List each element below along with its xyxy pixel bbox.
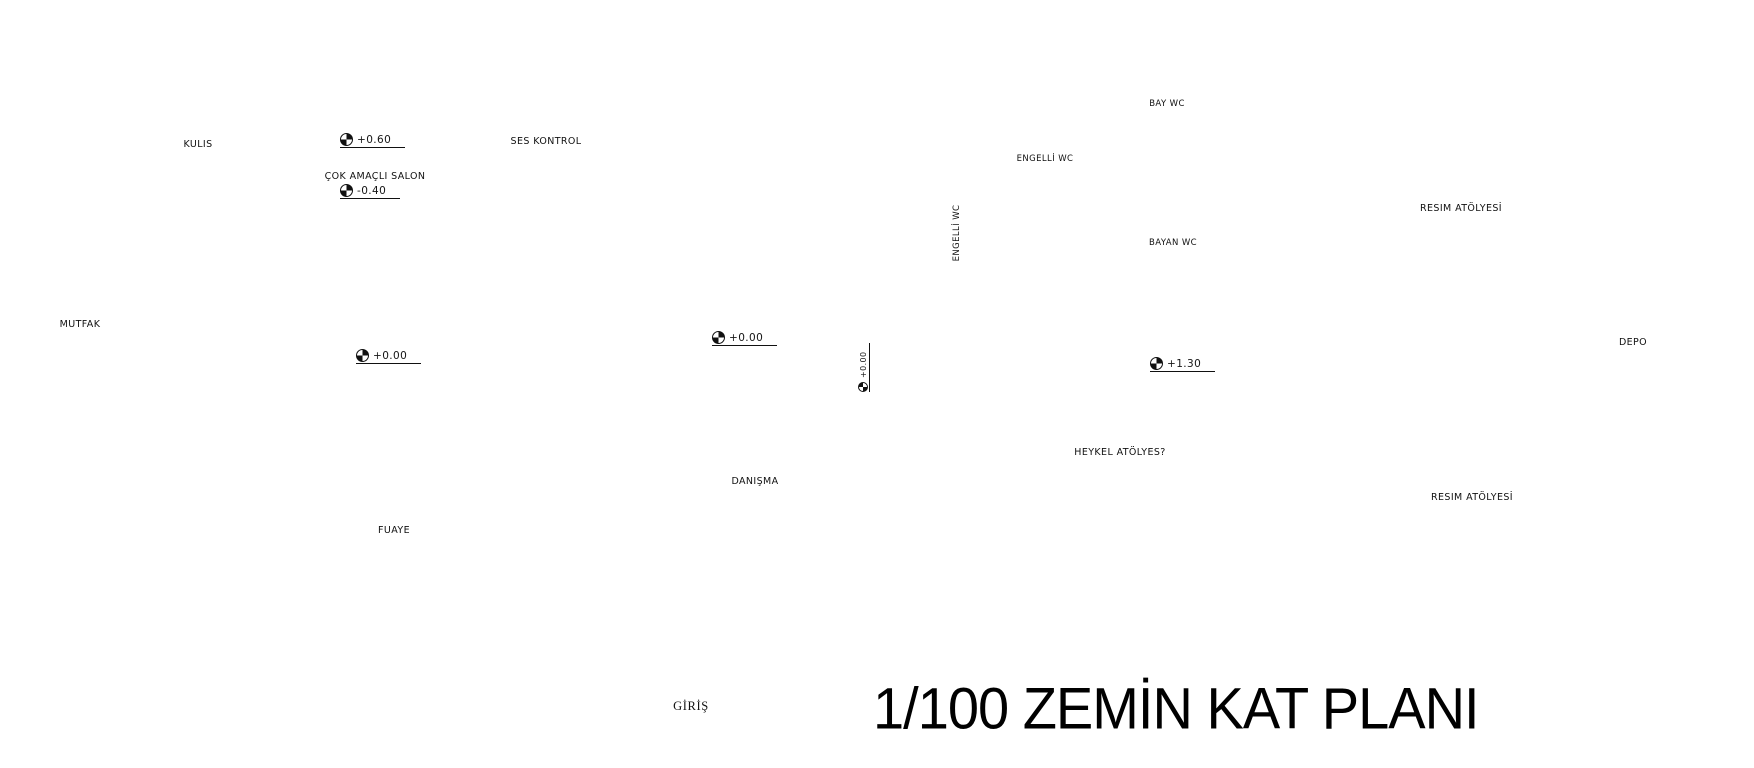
elevation-marker-ramp: +0.00 — [858, 343, 870, 392]
room-label-heykel-atolyesi: HEYKEL ATÖLYES? — [1074, 447, 1165, 458]
level-symbol-icon — [712, 331, 725, 344]
level-symbol-icon — [1150, 357, 1163, 370]
room-label-mutfak: MUTFAK — [60, 319, 101, 330]
elevation-marker-atolye: +1.30 — [1150, 357, 1215, 372]
room-label-engelli-wc-lower: ENGELLİ WC — [952, 205, 962, 262]
floor-plan-canvas — [0, 0, 1754, 768]
room-label-fuaye: FUAYE — [378, 525, 410, 536]
sheet-title: 1/100 ZEMİN KAT PLANI — [873, 674, 1479, 742]
room-label-engelli-wc-right: ENGELLİ WC — [1017, 154, 1074, 164]
elevation-marker-salon: -0.40 — [340, 184, 400, 199]
room-label-bay-wc: BAY WC — [1149, 99, 1185, 109]
level-symbol-icon — [340, 133, 353, 146]
room-label-resim-atolyesi-alt: RESIM ATÖLYESİ — [1431, 492, 1513, 503]
elevation-marker-stair: +0.00 — [712, 331, 777, 346]
floor-plan-sheet: KULIS ÇOK AMAÇLI SALON SES KONTROL MUTFA… — [0, 0, 1754, 768]
room-label-depo: DEPO — [1619, 337, 1647, 348]
level-symbol-icon — [858, 382, 868, 392]
room-label-ses-kontrol: SES KONTROL — [511, 136, 582, 147]
room-label-kulis: KULIS — [183, 139, 212, 150]
room-label-resim-atolyesi-ust: RESIM ATÖLYESİ — [1420, 203, 1502, 214]
level-symbol-icon — [340, 184, 353, 197]
elevation-marker-stage: +0.60 — [340, 133, 405, 148]
room-label-danisma: DANIŞMA — [731, 476, 778, 487]
level-symbol-icon — [356, 349, 369, 362]
room-label-cok-amacli-salon: ÇOK AMAÇLI SALON — [325, 171, 426, 182]
room-label-bayan-wc: BAYAN WC — [1149, 238, 1197, 248]
entrance-label: GİRİŞ — [673, 699, 709, 714]
elevation-marker-fuaye: +0.00 — [356, 349, 421, 364]
